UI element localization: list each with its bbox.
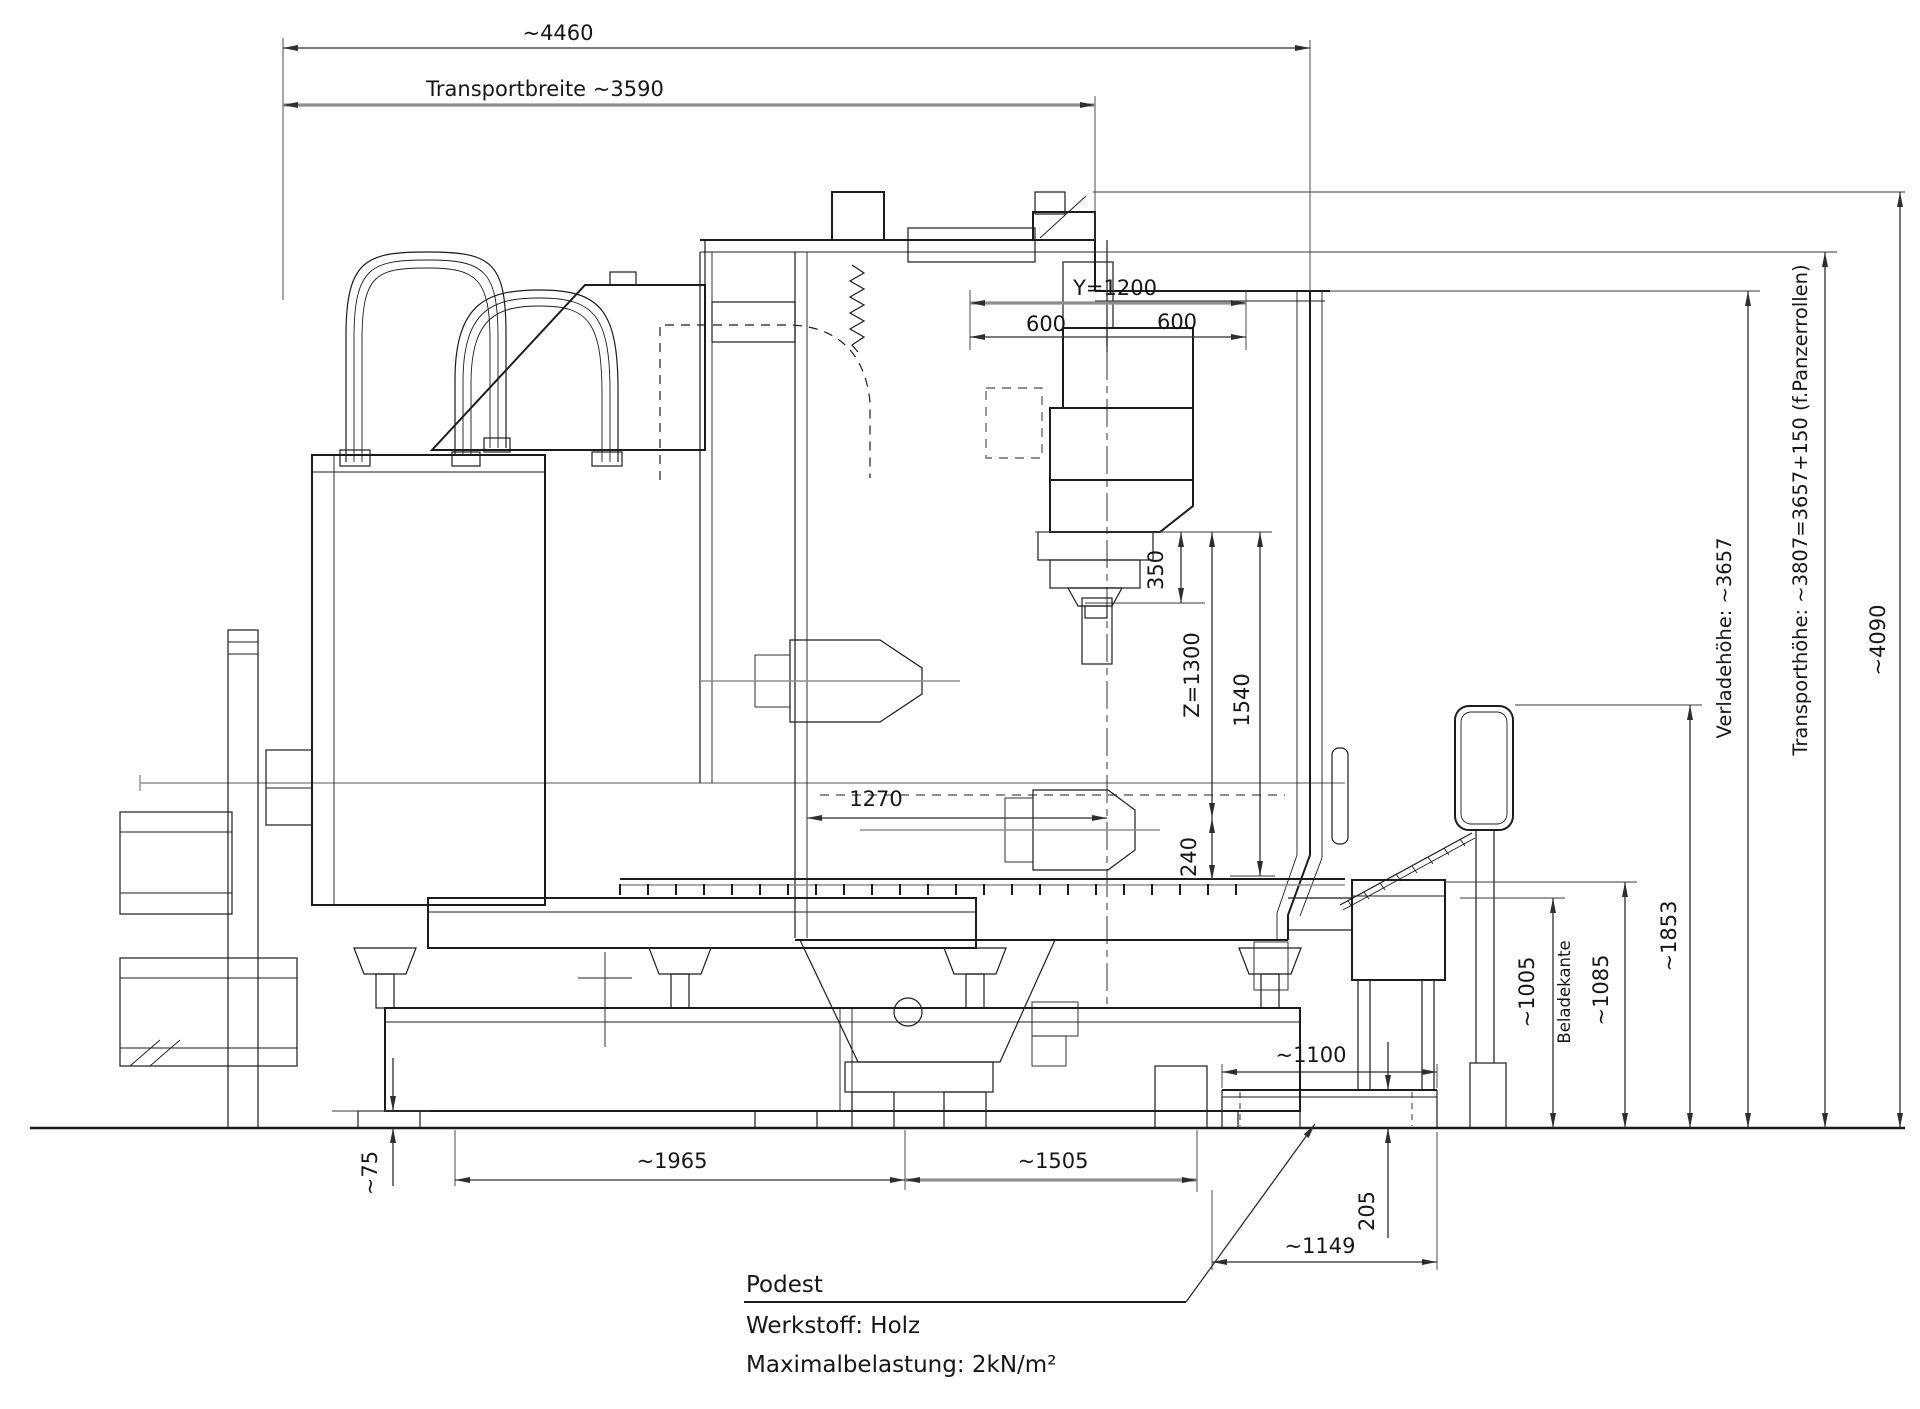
label-y-travel: Y=1200 — [1072, 276, 1157, 300]
machine-foot — [755, 1111, 817, 1128]
note-material: Werkstoff: Holz — [746, 1313, 920, 1339]
label-1085: ~1085 — [1589, 954, 1613, 1025]
machine-dimension-drawing: ~4460 Transportbreite ~3590 Y=1200 600 6… — [0, 0, 1920, 1409]
label-y-right: 600 — [1157, 310, 1197, 334]
roof-cap — [1033, 192, 1095, 240]
right-support-foot — [1155, 1066, 1207, 1128]
label-240: 240 — [1177, 837, 1201, 877]
label-z-travel: Z=1300 — [1180, 632, 1204, 717]
label-1149: ~1149 — [1284, 1234, 1355, 1258]
label-1505: ~1505 — [1017, 1149, 1088, 1173]
note-max-load: Maximalbelastung: 2kN/m² — [746, 1352, 1056, 1378]
label-205: 205 — [1355, 1191, 1379, 1231]
railing — [1340, 833, 1475, 910]
datum-cross — [578, 952, 632, 1047]
dimension-lines — [283, 48, 1900, 1262]
label-1853: ~1853 — [1657, 900, 1681, 971]
label-1965: ~1965 — [636, 1149, 707, 1173]
technical-drawing-page: ~4460 Transportbreite ~3590 Y=1200 600 6… — [0, 0, 1920, 1409]
axis-motor-right — [860, 790, 1160, 870]
label-transport-width: Transportbreite ~3590 — [425, 77, 664, 101]
hose-clamp — [340, 450, 370, 466]
label-75: ~75 — [358, 1151, 382, 1195]
chip-funnel — [800, 940, 1288, 1128]
machine-foot — [358, 1111, 420, 1128]
dimension-labels: ~4460 Transportbreite ~3590 Y=1200 600 6… — [358, 21, 1890, 1258]
cross-slide — [354, 898, 1301, 1047]
machine-silhouette — [30, 192, 1905, 1128]
machine-column — [266, 455, 545, 905]
left-cabinet-upper — [120, 812, 232, 914]
pendant-base — [1470, 1063, 1506, 1128]
control-pendant — [1455, 706, 1513, 1128]
label-1100: ~1100 — [1275, 1043, 1346, 1067]
door-handle — [1332, 748, 1348, 844]
label-y-left: 600 — [1026, 312, 1066, 336]
note-podest: Podest — [746, 1272, 823, 1298]
work-zone-dashed-contour — [660, 325, 870, 480]
label-beladekante: Beladekante — [1555, 940, 1574, 1043]
label-350: 350 — [1144, 550, 1168, 590]
note-leader-line — [1186, 1124, 1315, 1302]
label-overall-width: ~4460 — [522, 21, 593, 45]
label-4090: ~4090 — [1866, 604, 1890, 675]
machine-bed — [358, 1008, 1300, 1128]
label-transporthoehe: Transporthöhe: ~3807=3657+150 (f.Panzerr… — [1789, 264, 1812, 756]
head-dashed-box — [986, 388, 1042, 458]
machine-foot — [1238, 1111, 1300, 1128]
podest-platform — [1222, 1090, 1437, 1128]
tool-tip — [1085, 606, 1107, 618]
cable-hose-loops — [340, 252, 622, 466]
label-1005: ~1005 — [1515, 956, 1539, 1027]
label-1270: 1270 — [849, 787, 902, 811]
bellows-symbol — [850, 265, 864, 352]
label-1540: 1540 — [1230, 673, 1254, 726]
axis-motor-left — [700, 640, 960, 722]
enclosure-walls — [700, 252, 1348, 940]
left-cabinet-lower — [120, 958, 297, 1066]
machine-table — [620, 879, 1345, 895]
label-verladehoehe: Verladehöhe: ~3657 — [1713, 538, 1736, 739]
